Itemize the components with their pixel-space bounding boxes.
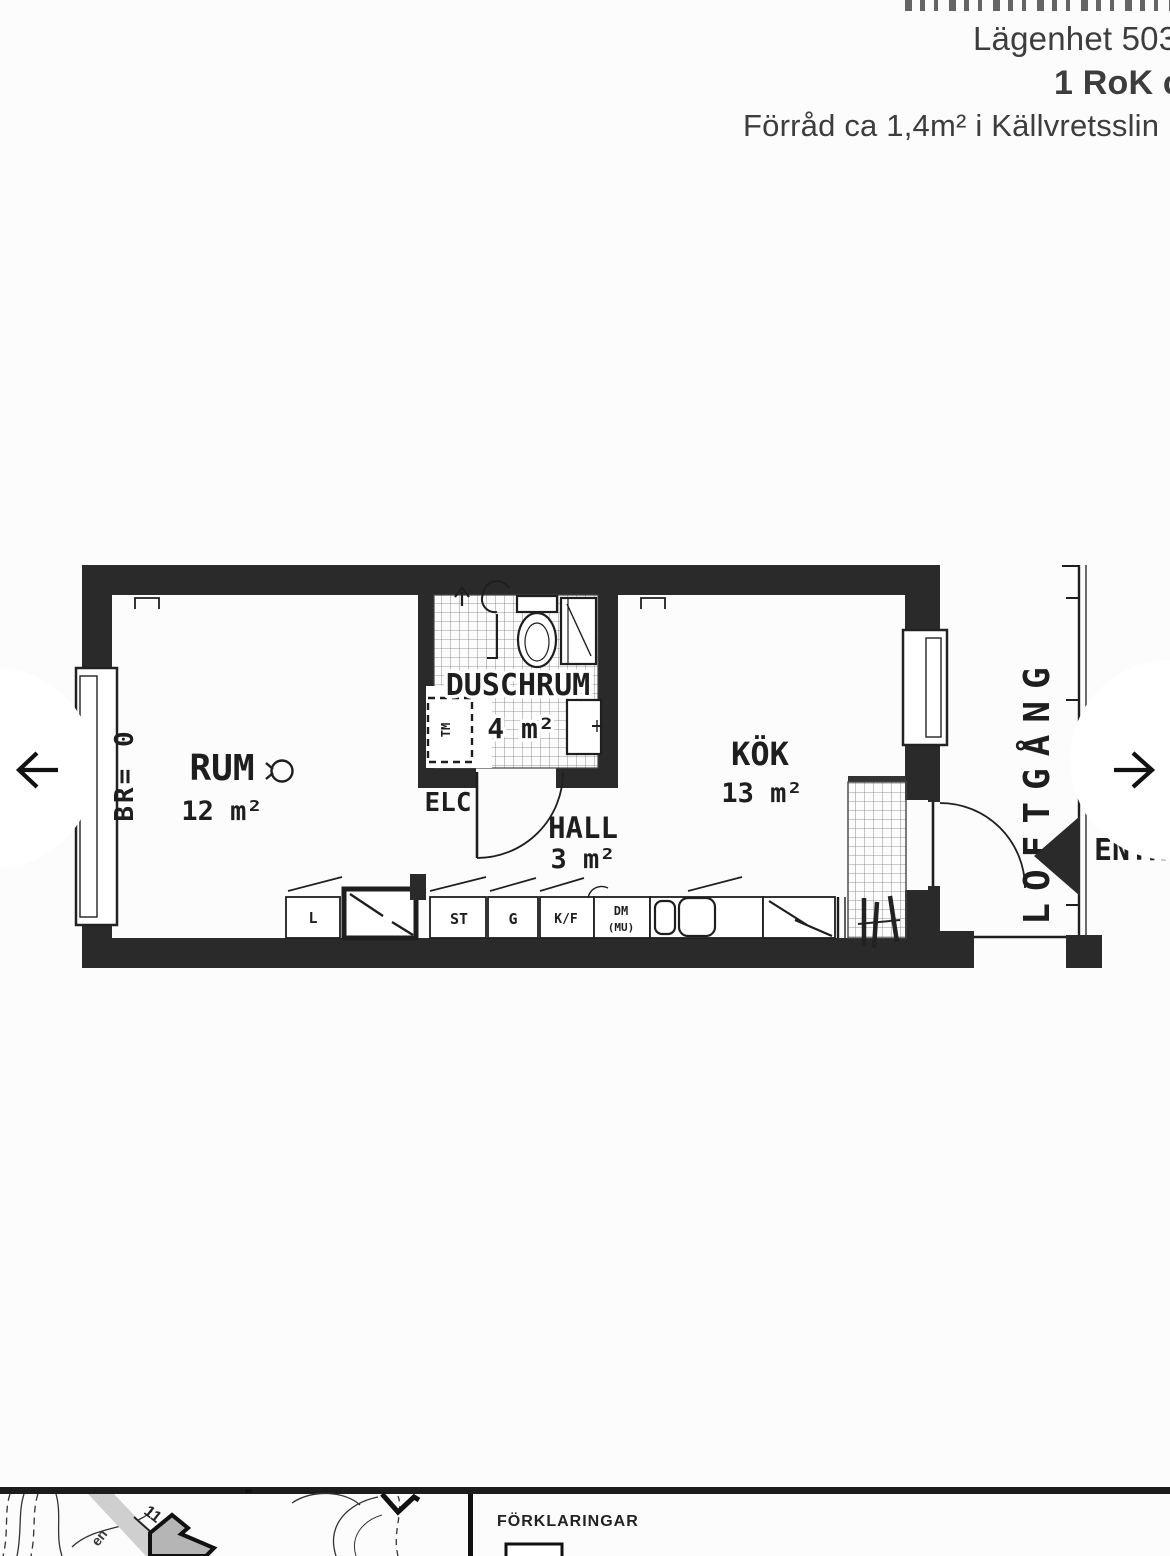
- wall-bottom: [82, 938, 973, 968]
- wall-right-mid: [905, 745, 940, 800]
- entry-tiles: [848, 776, 906, 948]
- floorplan: TM DUSCHRUM 4 m² RUM 12 m² KÖK 13 m² HAL…: [0, 540, 1170, 1020]
- strip-top-rule: [0, 1487, 1170, 1494]
- unit-dm-label: DM: [614, 904, 628, 918]
- entrance-door: [928, 795, 1025, 893]
- counter-end-lines: [838, 897, 845, 938]
- rum-label: RUM: [189, 748, 254, 789]
- detector-symbol: [266, 761, 293, 782]
- unit-kf-label: K/F: [554, 912, 578, 927]
- duschrum-label: DUSCHRUM: [446, 668, 591, 703]
- kok-area: 13 m²: [721, 778, 802, 809]
- unit-mu-label: (MU): [608, 921, 635, 934]
- br-label: BR= 0: [110, 728, 140, 821]
- shower-screen: [561, 598, 596, 664]
- legend-title: FÖRKLARINGAR: [497, 1511, 639, 1530]
- legend-panel: FÖRKLARINGAR: [468, 1494, 639, 1556]
- unit-linen-label: L: [308, 909, 317, 927]
- washing-machine-label: TM: [439, 723, 453, 737]
- apartment-number-line: Lägenhet 503: [973, 20, 1170, 58]
- wall-left-upper: [82, 565, 112, 668]
- map-building: [150, 1515, 214, 1556]
- wall-stub: [410, 874, 426, 900]
- storage-line: Förråd ca 1,4m² i Källvretsslin: [743, 108, 1159, 144]
- site-map: 11 en: [3, 1489, 419, 1556]
- loftgang-label: LOFTGÅNG: [1016, 655, 1058, 924]
- clipped-text-fragment: [905, 0, 1170, 11]
- rum-area: 12 m²: [181, 796, 262, 827]
- wall-corner-block: [938, 931, 974, 968]
- wall-left-lower: [82, 925, 112, 968]
- kok-label: KÖK: [731, 735, 790, 773]
- kitchen-sink: [655, 898, 715, 936]
- railing-pillar: [1066, 935, 1102, 968]
- window-east: [903, 630, 947, 745]
- elc-label: ELC: [425, 788, 472, 818]
- wall-right-lower: [905, 890, 940, 938]
- unit-st-label: ST: [450, 910, 468, 928]
- washbasin: [567, 700, 603, 754]
- legend-border: [468, 1494, 473, 1556]
- next-button-circle[interactable]: [1070, 660, 1170, 860]
- toilet: [517, 596, 557, 667]
- map-boundary-zigzag: [382, 1494, 419, 1512]
- kok-corner-mark: [641, 598, 665, 609]
- rum-corner-mark: [135, 598, 159, 609]
- rok-line: 1 RoK ca: [1054, 64, 1170, 103]
- washing-machine: TM: [428, 698, 472, 762]
- map-dot: [245, 1489, 252, 1493]
- unit-g-label: G: [508, 910, 517, 928]
- hall-area: 3 m²: [550, 844, 615, 875]
- hall-label: HALL: [548, 811, 618, 845]
- wall-top: [82, 565, 940, 595]
- duschrum-area: 4 m²: [487, 712, 554, 745]
- site-map-strip: 11 en FÖRKLARINGAR: [0, 1487, 1170, 1556]
- wall-right-upper: [905, 565, 940, 630]
- legend-swatch: [506, 1544, 562, 1556]
- gallery-next-button[interactable]: [1070, 660, 1170, 860]
